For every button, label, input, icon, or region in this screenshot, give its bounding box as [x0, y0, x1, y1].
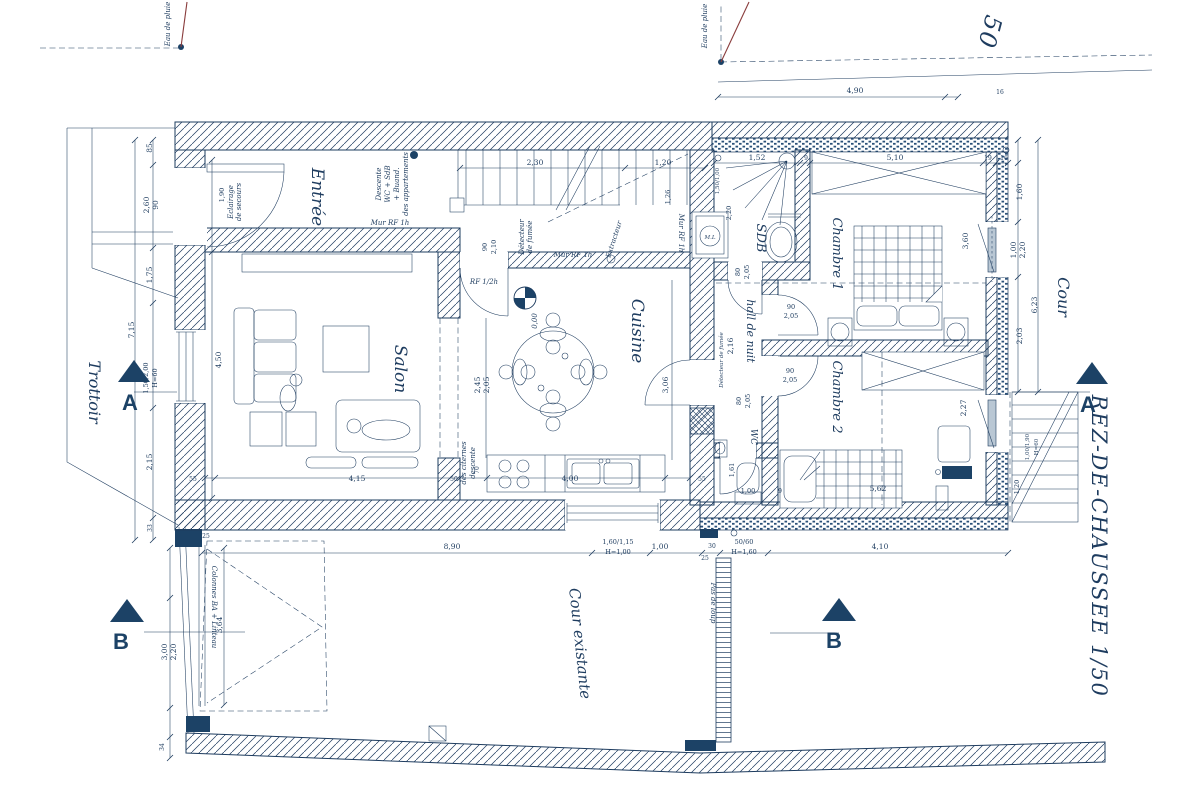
dim: 1,26	[664, 190, 672, 204]
dim: 90	[787, 303, 795, 311]
dim: H=60	[151, 368, 159, 387]
dim: H=1,60	[731, 548, 757, 556]
dim: 2,05	[783, 376, 797, 384]
dim: 4,15	[349, 474, 366, 483]
room-label-hall: hall de nuit	[744, 299, 757, 363]
note-descente: des appartements	[402, 152, 410, 216]
floor-plan-drawing: 2,30 1,20 1,52 9 5,10 19 16 4,90 16 8,90…	[0, 0, 1191, 800]
note-colonnes: Colonnes BA + Linteau	[210, 566, 218, 649]
salon-window	[176, 332, 196, 401]
dim: 80	[734, 268, 742, 276]
section-b-arrow-right	[822, 598, 856, 621]
dim: 6,23	[1030, 296, 1039, 313]
interior-stair	[450, 146, 688, 222]
note-mur-rf: Mur RF 1h	[553, 251, 593, 259]
room-label-entree: Entrée	[307, 167, 327, 226]
section-a-label: A	[122, 390, 138, 415]
note-niveau: 0,00	[531, 313, 539, 329]
dim: 2,27	[959, 399, 968, 416]
room-label-salon: Salon	[390, 345, 410, 393]
room-label-chambre2: Chambre 2	[829, 360, 844, 433]
dim: 2,05	[744, 394, 752, 408]
dim: 1,00/1,90	[1025, 433, 1031, 460]
dim: 5,62	[870, 484, 887, 493]
courtyard-enclosure	[175, 527, 1105, 773]
dim: 1,60	[1015, 183, 1024, 200]
dim: 25	[701, 555, 709, 562]
dim: 1,00	[652, 542, 669, 551]
dim: 8,90	[444, 542, 461, 551]
dim: 30	[708, 543, 716, 550]
dim: 2,20	[1018, 241, 1027, 258]
room-label-chambre1: Chambre 1	[829, 217, 844, 290]
dim: 1,60/1,15	[602, 538, 633, 546]
dim: 1,00	[1009, 241, 1018, 258]
dim: 19	[984, 155, 992, 162]
dim: 80	[735, 397, 743, 405]
pas-de-loup-strip	[716, 558, 731, 742]
dim: 90	[481, 243, 489, 251]
room-label-trottoir: Trottoir	[85, 360, 104, 425]
dim: 1,75	[145, 266, 154, 283]
kitchen-window	[567, 503, 658, 523]
room-label-cour-existante: Cour existante	[565, 587, 595, 700]
rear-boundary-wall	[186, 733, 1105, 773]
dim: 55	[189, 476, 197, 483]
note-eau-de-pluie: Eau de pluie	[701, 4, 709, 49]
duct-point	[410, 151, 418, 159]
dim: 90	[151, 200, 160, 210]
sheet-title: REZ-DE-CHAUSSEE 1/50	[1087, 394, 1111, 698]
note-descente: + Buand.	[393, 167, 401, 200]
note-eclairage: Eclairage	[227, 185, 235, 220]
sidewalk-lines	[67, 128, 178, 525]
dim: 34	[159, 743, 166, 751]
dim: 2,15	[145, 453, 154, 470]
section-a-arrow-right	[1076, 362, 1108, 384]
dim: 2,03	[1015, 327, 1024, 344]
dim: 2,05	[784, 312, 798, 320]
dim: 2,16	[726, 337, 735, 354]
dim: 1,50/1,00	[715, 167, 721, 194]
room-label-cour: Cour	[1054, 277, 1073, 318]
floor-plan-sheet: 2,30 1,20 1,52 9 5,10 19 16 4,90 16 8,90…	[0, 0, 1191, 800]
dim: 2,30	[527, 158, 544, 167]
room-label-sdb: SDB	[753, 224, 768, 253]
dim: 2,20	[725, 206, 733, 220]
note-eau-de-pluie: Eau de pluie	[164, 2, 172, 47]
note-citernes: des citernes	[460, 441, 468, 485]
adjacent-sheet-title-fragment: 50	[972, 12, 1008, 52]
dim: 4,90	[847, 86, 864, 95]
dim: 85	[145, 143, 154, 153]
dim: 1,20	[655, 158, 672, 167]
dim: 7,15	[127, 321, 136, 338]
dim: 2,45	[473, 376, 482, 393]
dim: 9	[804, 155, 808, 162]
kitchen-fire-door	[460, 268, 508, 316]
dim: 16	[1000, 155, 1008, 162]
note-descente: WC + SdB	[384, 165, 392, 202]
dim: 5,10	[887, 153, 904, 162]
section-b-arrow-left	[110, 599, 144, 622]
dim: 4,00	[562, 474, 579, 483]
note-citernes: descente	[469, 447, 477, 479]
dim: 4,10	[872, 542, 889, 551]
dim: 25	[202, 533, 210, 540]
dim: 1,61	[728, 463, 736, 477]
dim: 1,90	[218, 188, 226, 202]
dim: 2,60	[142, 196, 151, 213]
dim: 3,00	[160, 643, 169, 660]
dim: 3,60	[961, 232, 970, 249]
note-detecteur: Détecteur de fumée	[718, 332, 725, 389]
dim: 3,06	[661, 376, 670, 393]
dim: 2,05	[743, 265, 751, 279]
dim: 1,20	[1013, 480, 1021, 494]
dim: 2,10	[490, 240, 498, 254]
dim: 50	[450, 476, 458, 483]
dim: H=1,00	[605, 548, 631, 556]
dim: 1,00	[741, 487, 755, 495]
room-label-cuisine: Cuisine	[627, 299, 647, 364]
rainwater-pipe-left	[181, 2, 187, 47]
dim: 2,05	[482, 376, 491, 393]
exterior-stair	[1012, 392, 1078, 522]
note-ml: M.L	[703, 235, 715, 241]
note-rf-demi: RF 1/2h	[469, 278, 498, 286]
dim: 2,20	[169, 643, 178, 660]
note-detecteur: de fumée	[526, 221, 534, 254]
note-eclairage: de secours	[235, 183, 243, 222]
dim: 55	[698, 476, 706, 483]
dim: H=60	[1034, 438, 1040, 455]
dim: 90	[786, 367, 794, 375]
dim: 16	[996, 89, 1004, 96]
dim: 1,52	[749, 153, 766, 162]
dim: 4,50	[214, 351, 223, 368]
section-b-label: B	[826, 628, 842, 653]
note-mur-rf: Mur RF 1h	[677, 213, 685, 253]
dim: 50/60	[735, 538, 754, 546]
dim: 33	[147, 524, 154, 532]
section-b-label: B	[113, 629, 129, 654]
note-detecteur: Détecteur	[518, 219, 526, 256]
note-mur-rf: Mur RF 1h	[370, 219, 410, 227]
room-label-wc: WC	[748, 429, 758, 445]
dim: 9	[778, 488, 782, 495]
rainwater-pipe-right	[721, 2, 749, 62]
note-descente: Descente	[375, 168, 383, 202]
note-pas-de-loup: Pas de loup	[709, 582, 717, 624]
